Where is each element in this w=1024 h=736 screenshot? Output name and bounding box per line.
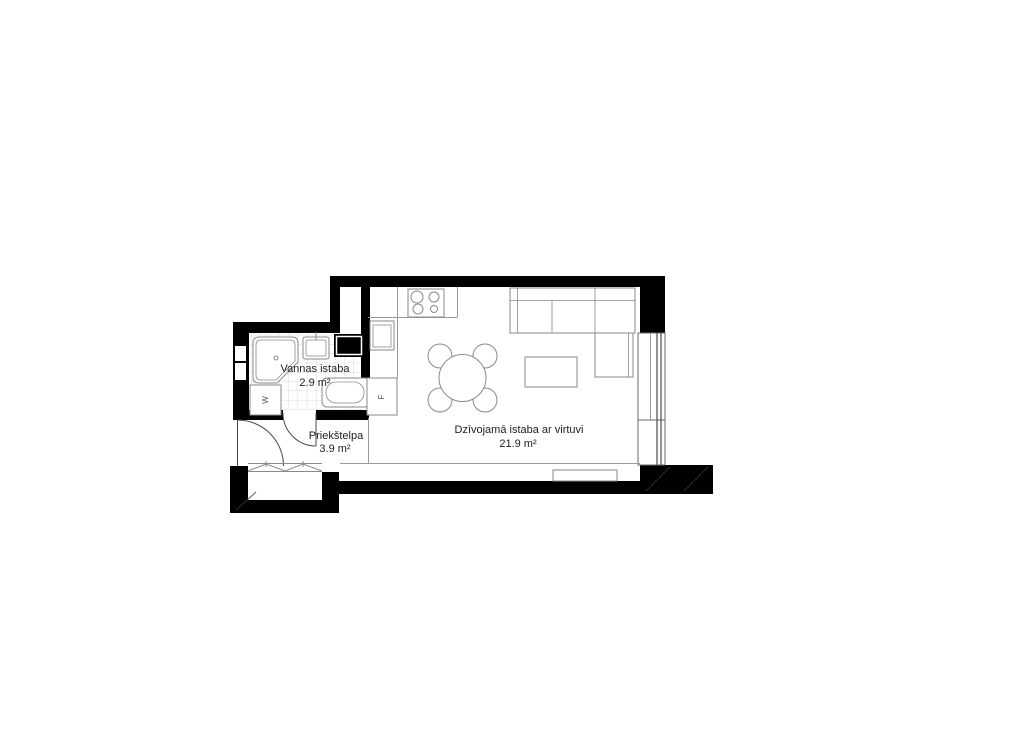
window (638, 333, 665, 465)
wall-niche-right (322, 472, 339, 513)
dining-table (439, 355, 486, 402)
wall-bathroom-right (361, 287, 370, 378)
stove (408, 289, 444, 317)
radiator (553, 470, 617, 481)
wall-living-bottom (337, 481, 663, 494)
sofa (510, 288, 635, 333)
wardrobe-symbol (248, 461, 322, 472)
living-room-area-label: 21.9 m² (499, 438, 537, 450)
living-room-name-label: Dzīvojamā istaba ar virtuvi (455, 424, 584, 436)
wall-niche-b (235, 363, 246, 380)
hall-name-label: Priekštelpa (309, 430, 364, 442)
dining-set (428, 344, 497, 412)
floor-plan-canvas: W F (0, 0, 1024, 731)
living-room-furniture (510, 288, 635, 481)
wall-duct-shaft (334, 334, 364, 357)
hall-area-label: 3.9 m² (319, 443, 351, 455)
washing-machine-label: W (261, 396, 270, 404)
fridge-label: F (377, 394, 386, 399)
wall-bottom-right-mass (640, 465, 713, 494)
bathroom-name-label: Vannas istaba (281, 363, 351, 375)
doors (238, 413, 317, 466)
entrance-door-arc (238, 420, 284, 466)
coffee-table (525, 357, 577, 387)
wall-bathroom-top (233, 322, 340, 333)
bathroom-area-label: 2.9 m² (299, 377, 331, 389)
wall-bathroom-bottom-right (316, 410, 369, 420)
floor-plan-drawing: W F (0, 0, 1024, 731)
wall-niche-a (235, 346, 246, 361)
sofa-chaise (595, 333, 633, 377)
wall-right-top (640, 276, 665, 333)
wall-niche-bottom (230, 500, 338, 513)
wall-top (330, 276, 665, 287)
